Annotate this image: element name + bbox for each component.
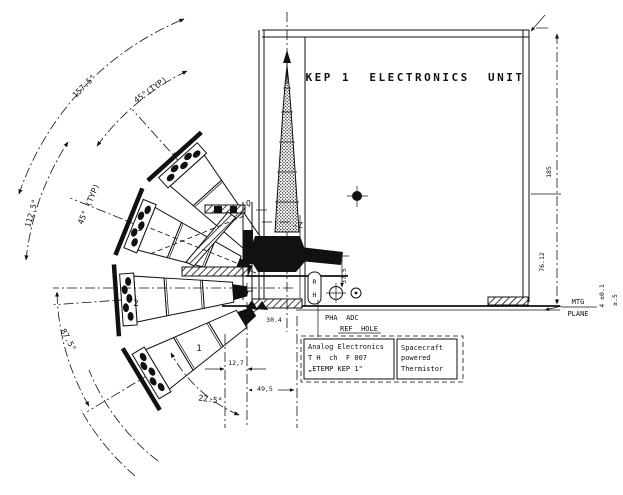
- boresight-arrowhead: [283, 50, 291, 63]
- mount-foot-right: [488, 297, 528, 305]
- rh-capsule-letter-h: H: [313, 291, 317, 299]
- thermistor-note-line1: Spacecraft: [401, 344, 443, 352]
- detector-2-number: 2: [133, 299, 138, 309]
- callouts-and-notes: PHA ADC REF HOLE Analog Electronics T H …: [301, 300, 463, 382]
- thermistor-note-line3: Thermistor: [401, 365, 443, 373]
- analog-note-line1: Analog Electronics: [308, 343, 384, 351]
- dim-76-12: 76.12: [538, 252, 546, 272]
- pha-adc-label: PHA ADC: [325, 314, 359, 322]
- angle-87-5-label: 87.5°: [59, 327, 78, 352]
- dim-4-tol: 4 ±0.1: [598, 284, 606, 308]
- right-dimensions: 185 76.12 MTG PLANE 4 ±0.1 ±.5: [531, 34, 619, 318]
- analog-note-line3: „ETEMP KEP 1": [308, 365, 363, 373]
- dim-37-5: 37.5: [340, 268, 348, 284]
- corner-leader-arrow: [531, 15, 545, 31]
- dim-30-4: 30.4: [266, 316, 282, 324]
- analog-note-line2: T H ch F 007: [308, 354, 367, 362]
- angle-45-typ-top-label: 45°(TYP): [132, 75, 168, 105]
- angle-112-5-label: 112.5°: [23, 198, 40, 228]
- axis-x-label: X: [232, 285, 237, 294]
- dim-12-7: 12,7: [228, 359, 244, 367]
- kep1-mechanical-drawing: KEP 1 ELECTRONICS UNIT 1 2 3 4: [0, 0, 623, 495]
- dim-tol-5: ±.5: [611, 294, 619, 306]
- detector-3-number: 3: [137, 224, 142, 234]
- angle-157-5-label: 157.5°: [71, 73, 98, 100]
- unit-title: KEP 1 ELECTRONICS UNIT: [306, 71, 525, 84]
- rh-capsule: [308, 272, 321, 304]
- dim-49-5: 49,5: [257, 385, 273, 393]
- detector-4-number: 4: [171, 152, 176, 162]
- axis-q-label: Q: [246, 199, 251, 208]
- angle-22-5-label: 22.5°: [198, 393, 223, 405]
- plane-label: PLANE: [567, 310, 588, 318]
- dim-185: 185: [545, 166, 553, 178]
- thermistor-note-line2: powered: [401, 354, 431, 362]
- mtg-label: MTG: [572, 298, 585, 306]
- reference-features: R H 37.5: [308, 186, 368, 304]
- ref-hole-label: REF HOLE: [340, 325, 378, 333]
- axis-minus-z-label: -Z: [293, 221, 303, 230]
- detector-1-number: 1: [196, 344, 201, 354]
- technical-drawing-page: KEP 1 ELECTRONICS UNIT 1 2 3 4: [0, 0, 623, 495]
- rh-capsule-letter-r: R: [313, 278, 317, 286]
- angle-45-typ-mid-label: 45° (TYP): [76, 182, 101, 225]
- collimator-column: [275, 12, 299, 332]
